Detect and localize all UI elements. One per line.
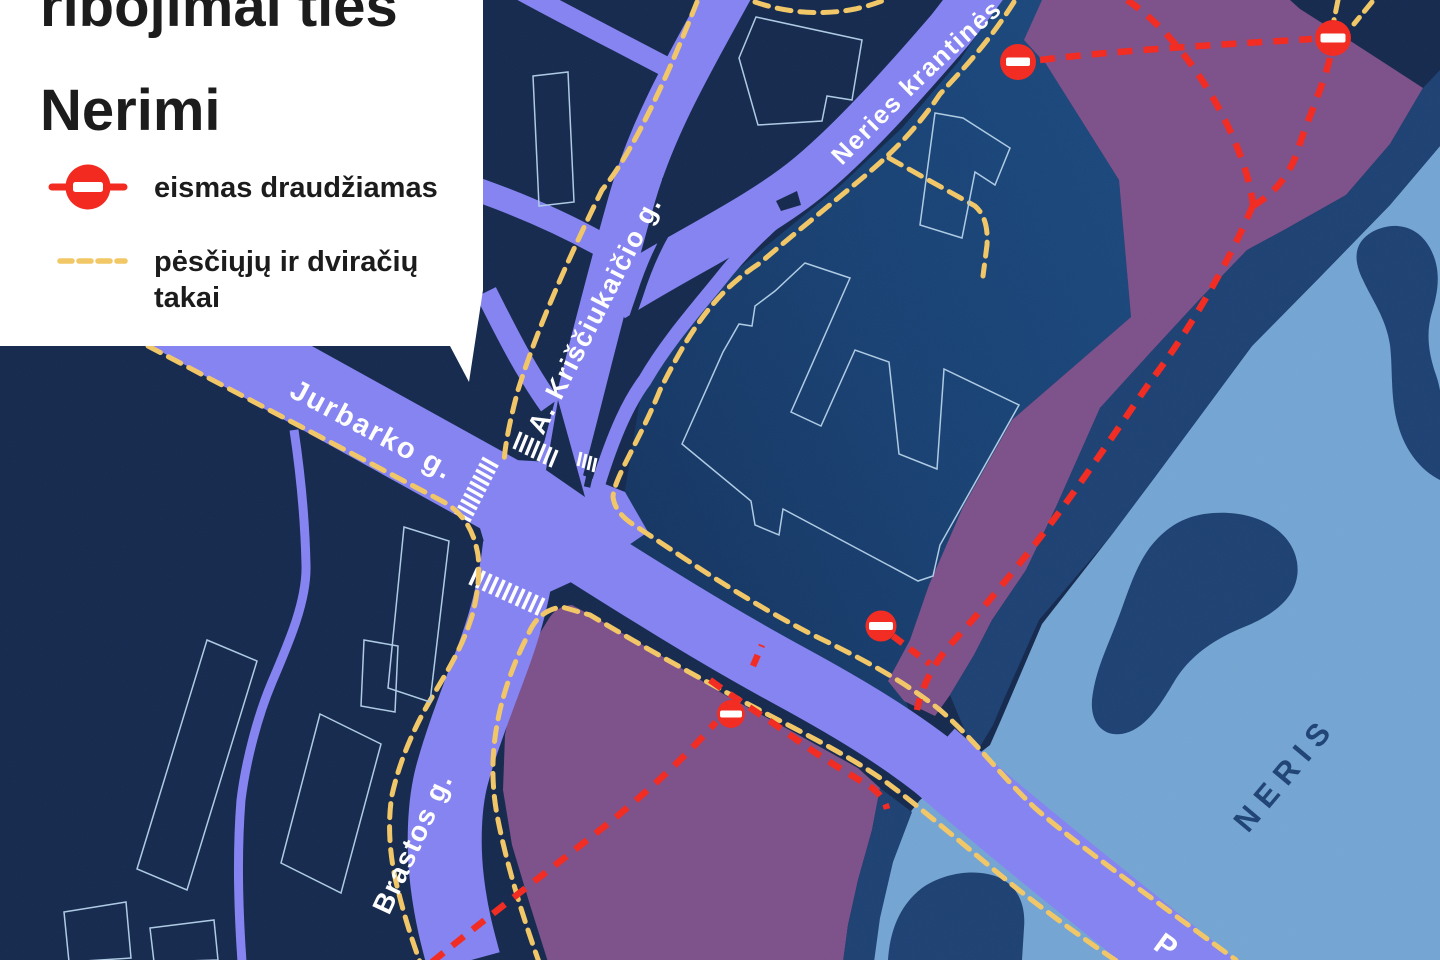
svg-text:pėsčiųjų ir dviračių: pėsčiųjų ir dviračių [154,246,418,278]
svg-text:eismas draudžiamas: eismas draudžiamas [154,172,438,204]
svg-text:takai: takai [154,282,220,314]
svg-text:Nerimi: Nerimi [40,78,221,143]
svg-text:ribojimai ties: ribojimai ties [40,0,398,39]
